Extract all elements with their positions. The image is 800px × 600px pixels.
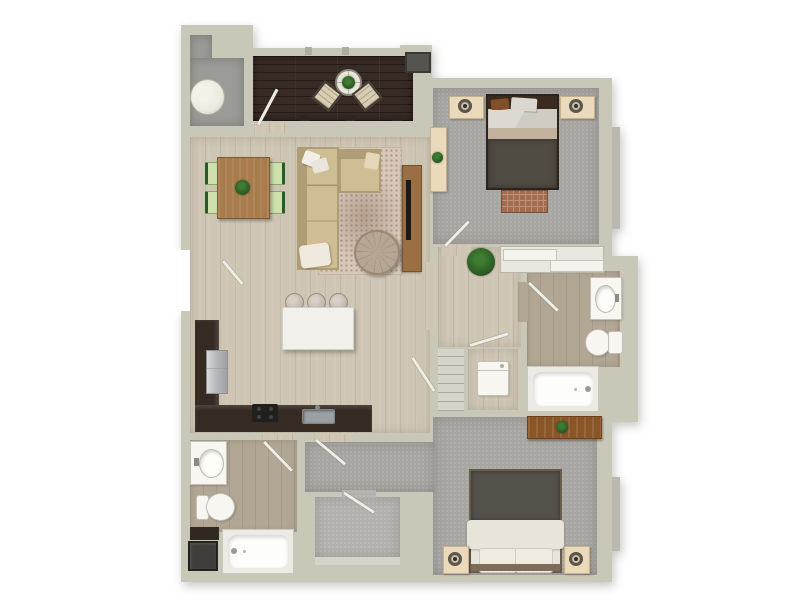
washer-lid-line [478,370,508,371]
bathroom1-bathtub [527,366,599,412]
range-cooktop [252,404,278,422]
walkin-closet-door [343,491,375,513]
bedroom2-sheet [467,520,564,549]
balcony-track-4 [392,116,402,121]
bedroom2-headboard [471,564,560,571]
bedroom2-door [315,439,346,466]
bathroom1-sink [595,285,616,313]
bedroom1-sheet-band [488,128,557,139]
stacked-washer-dryer [188,541,218,571]
sliding-door-panel-1 [503,249,557,261]
tv [406,180,411,240]
bathroom1-faucet [615,294,619,302]
bathroom1-toilet [585,328,622,355]
sofa-pillow-3 [364,152,381,170]
bathroom2-toilet-bowl [206,493,235,521]
washer [477,361,509,396]
bedroom1-plant [432,152,443,163]
round-lounge-chair [354,230,400,275]
hallway-plant [467,248,495,276]
kitchen-hall-door [411,357,435,392]
washer-knob [500,364,504,368]
bedroom1-lamp-right [569,99,583,113]
balcony-track-3 [345,116,355,121]
sofa-throw-blanket [299,242,332,269]
bedroom2-blanket [471,471,560,521]
balcony-wall-unit [405,52,431,73]
features-layer [0,0,800,600]
bedroom2-plant [556,421,568,433]
bedroom1-lamp-left [458,99,472,113]
railing-post-1 [305,47,312,55]
bathroom2-toilet [196,493,233,520]
bedroom2-bed [469,469,562,573]
kitchen-sink [302,409,335,424]
kitchen-counter-horizontal [195,405,372,432]
bedroom1-bed [486,94,559,190]
bedroom2-lamp-left [448,552,462,566]
bathroom1-tub-basin [533,372,593,406]
bathroom1-door [528,282,559,312]
bathroom1-tub-faucet [585,386,591,392]
bathroom2-faucet [194,458,199,466]
balcony-plant [342,76,355,89]
sliding-door-panel-2 [550,260,604,272]
bathroom2-tub-basin [228,535,288,568]
balcony-track-2 [300,116,310,121]
water-heater [190,79,225,115]
bedroom1-pillow-brown [490,98,509,111]
laundry-door [470,332,509,347]
bathroom1-vanity [590,277,622,320]
hall-closet [500,246,604,273]
bathroom2-cabinet [190,527,219,540]
refrigerator [206,350,228,394]
bathroom2-door [263,441,293,472]
media-console [402,165,422,272]
floor-plan [0,0,800,600]
kitchen-faucet [315,405,320,410]
bathroom1-toilet-tank [608,331,623,354]
bathroom2-vanity [190,441,227,485]
bathroom2-tub-faucet [231,548,237,554]
bathroom1-tub-drain [574,388,577,391]
bathroom2-sink [199,449,224,478]
bedroom1-sheet-fold [489,110,525,130]
entry-door [222,260,244,285]
bathroom2-bathtub [222,529,294,574]
bedroom1-door [444,221,470,248]
bedroom2-lamp-right [569,552,583,566]
bathroom2-tub-drain [243,550,246,553]
kitchen-island [282,307,354,350]
dining-centerpiece-plant [235,180,250,195]
bedroom1-foot-rug [501,190,548,213]
bedroom1-blanket [488,139,557,188]
bedroom1-pillow-white [511,97,538,112]
railing-post-2 [342,47,349,55]
